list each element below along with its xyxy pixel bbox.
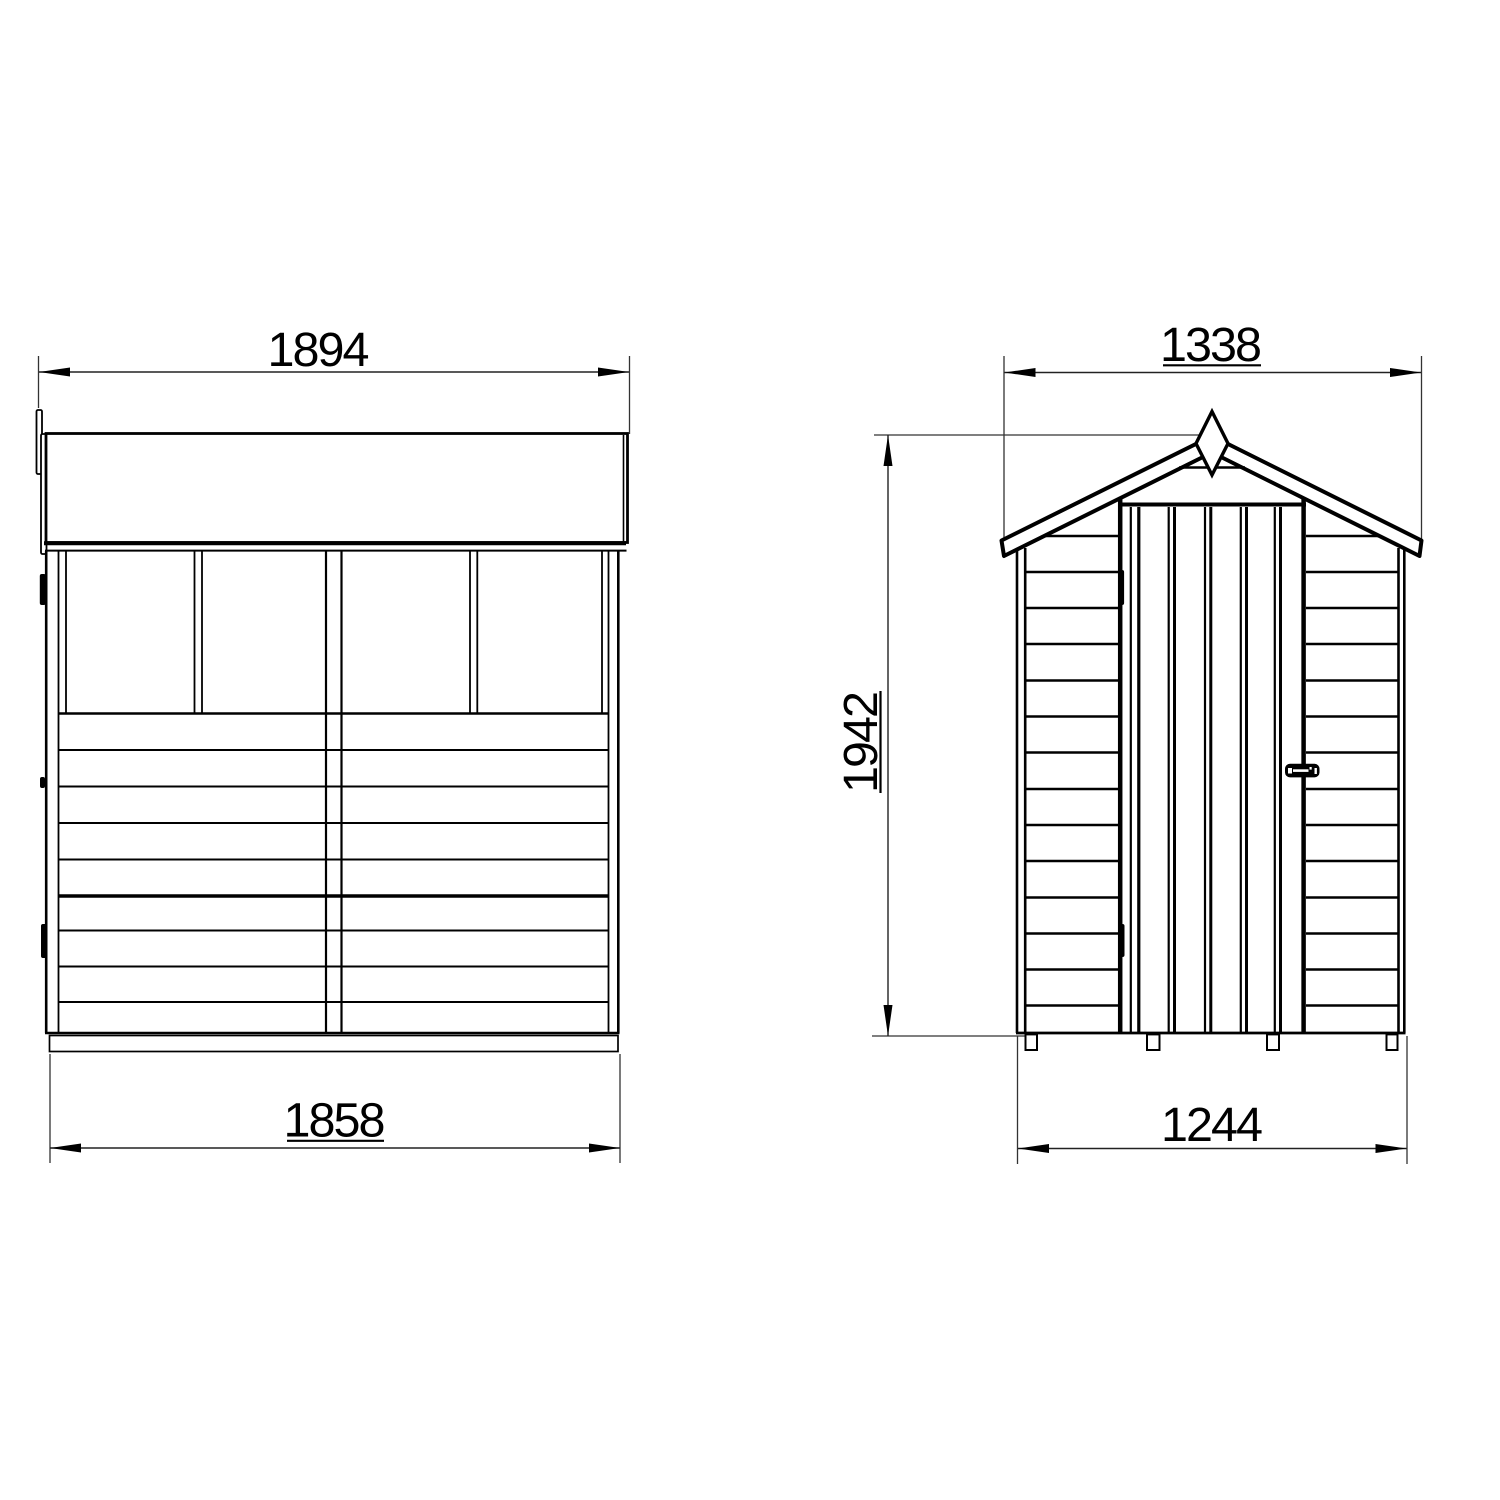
svg-text:1244: 1244 [1161, 1098, 1262, 1152]
svg-text:1894: 1894 [268, 323, 369, 377]
svg-text:1858: 1858 [284, 1094, 384, 1148]
svg-text:1338: 1338 [1160, 318, 1260, 372]
